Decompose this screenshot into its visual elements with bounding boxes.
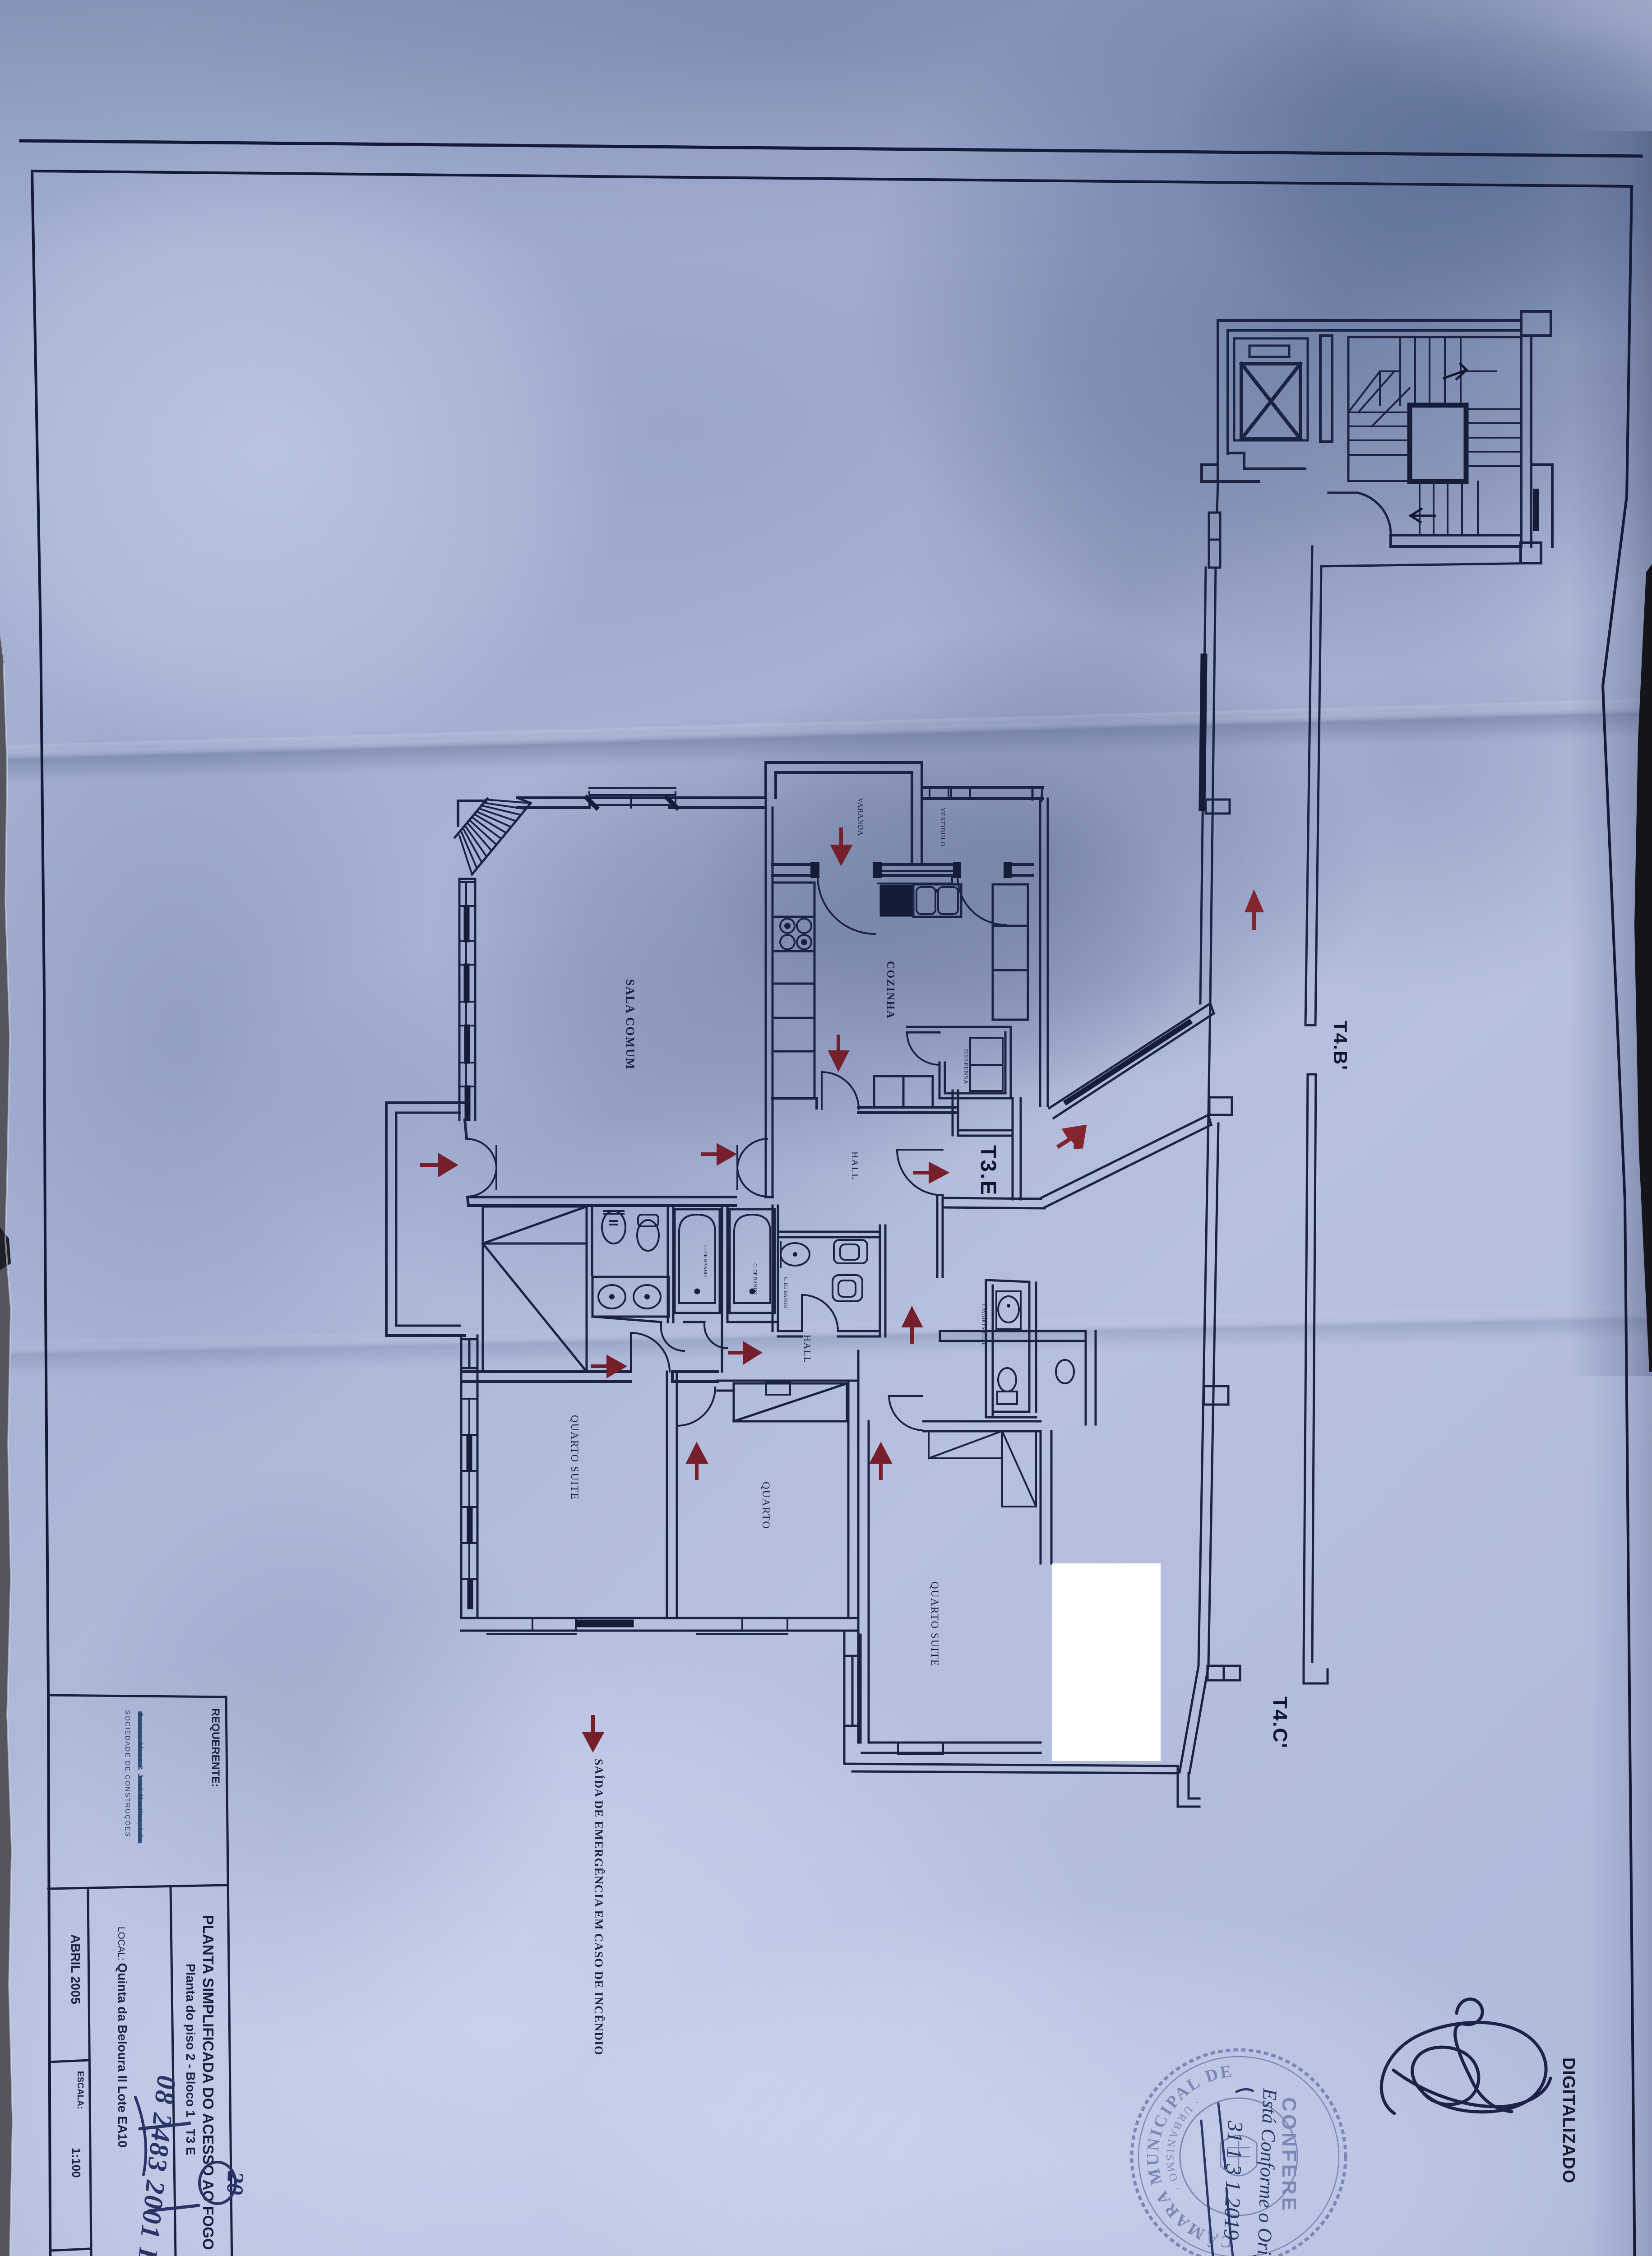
svg-text:T4.C': T4.C'	[1269, 1697, 1291, 1749]
svg-text:SALA COMUM: SALA COMUM	[624, 979, 637, 1070]
svg-text:VARANDA: VARANDA	[856, 798, 864, 836]
svg-text:C. DE BANHO: C. DE BANHO	[752, 1263, 758, 1294]
svg-text:QUARTO SUITE: QUARTO SUITE	[929, 1581, 940, 1667]
svg-text:LAVABO SOCIAL: LAVABO SOCIAL	[981, 1304, 987, 1346]
svg-text:20: 20	[222, 2171, 248, 2196]
svg-text:C. DE BANHO: C. DE BANHO	[703, 1245, 708, 1276]
svg-text:31 1 3 1 2019: 31 1 3 1 2019	[1219, 2120, 1247, 2241]
svg-text:COZINHA: COZINHA	[884, 961, 896, 1019]
svg-text:SAÍDA DE EMERGÊNCIA EM CASO DE: SAÍDA DE EMERGÊNCIA EM CASO DE INCÊNDIO	[592, 1759, 605, 2055]
svg-text:T3.E: T3.E	[976, 1145, 1000, 1196]
svg-text:1:100: 1:100	[69, 2148, 83, 2178]
svg-text:C. DE BANHO: C. DE BANHO	[783, 1277, 788, 1308]
svg-text:HALL: HALL	[850, 1151, 861, 1180]
svg-text:QUARTO: QUARTO	[760, 1482, 772, 1530]
svg-text:Planta do piso 2 - Bloco 1 - T: Planta do piso 2 - Bloco 1 - T3 E	[184, 1964, 198, 2155]
svg-text:DESPENSA: DESPENSA	[962, 1049, 969, 1085]
svg-text:SOCIEDADE DE CONSTRUÇÕES: SOCIEDADE DE CONSTRUÇÕES	[124, 1710, 131, 1837]
svg-text:QUARTO SUITE: QUARTO SUITE	[569, 1415, 580, 1500]
svg-text:ABRIL 2005: ABRIL 2005	[69, 1934, 83, 2004]
svg-text:T4.B': T4.B'	[1330, 1021, 1351, 1071]
svg-text:DIGITALIZADO: DIGITALIZADO	[1559, 2057, 1578, 2183]
svg-text:ESCALA:: ESCALA:	[75, 2071, 85, 2109]
svg-text:REQUERENTE:: REQUERENTE:	[209, 1708, 222, 1787]
svg-text:CONFERE: CONFERE	[1278, 2097, 1300, 2213]
svg-text:HALL: HALL	[802, 1335, 813, 1364]
svg-text:VESTIBULO: VESTIBULO	[939, 808, 946, 847]
